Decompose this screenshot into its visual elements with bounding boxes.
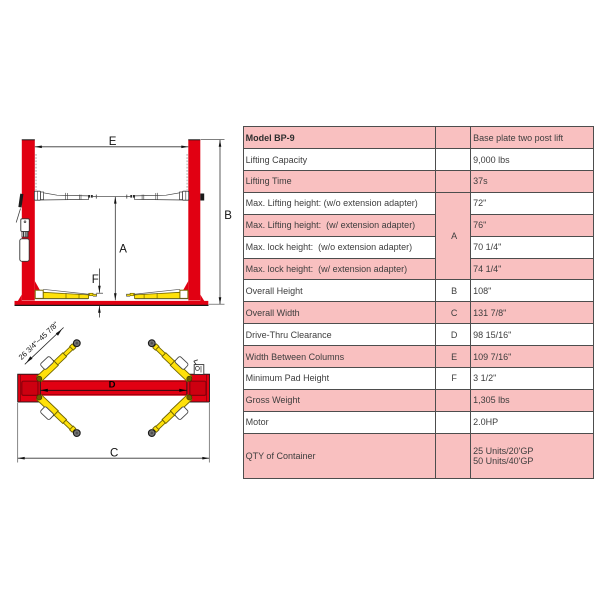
svg-text:E: E <box>109 136 117 148</box>
svg-text:F: F <box>92 274 99 286</box>
svg-text:26 3/4"~45 7/8": 26 3/4"~45 7/8" <box>17 320 61 362</box>
svg-text:C: C <box>110 447 118 459</box>
svg-text:B: B <box>224 210 232 222</box>
svg-text:A: A <box>119 244 127 256</box>
svg-text:D: D <box>109 379 116 390</box>
